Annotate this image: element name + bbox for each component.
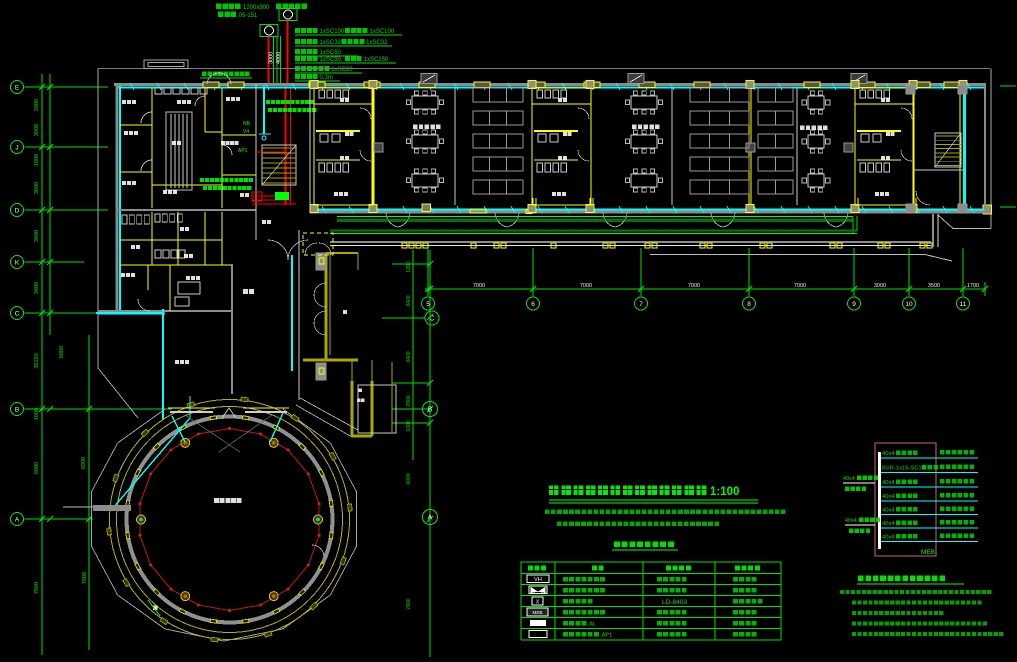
svg-text:BVR-1x16-SC15-: BVR-1x16-SC15- xyxy=(882,466,927,472)
svg-text:A: A xyxy=(15,516,20,523)
svg-text:6000: 6000 xyxy=(81,457,87,469)
svg-text:1xSC32: 1xSC32 xyxy=(320,40,342,46)
svg-text:6000: 6000 xyxy=(34,462,40,474)
svg-text:A: A xyxy=(428,515,433,522)
svg-text:1xSC32: 1xSC32 xyxy=(366,40,388,46)
svg-text:6000: 6000 xyxy=(59,346,65,358)
svg-text:4000: 4000 xyxy=(276,52,282,64)
svg-text:8: 8 xyxy=(747,301,751,308)
svg-text:0.3m: 0.3m xyxy=(320,75,333,81)
svg-text:B: B xyxy=(428,407,433,414)
svg-text:40x4: 40x4 xyxy=(882,535,895,541)
svg-text:40x4: 40x4 xyxy=(843,476,855,482)
svg-text:3400: 3400 xyxy=(406,351,412,362)
svg-text:C: C xyxy=(15,310,20,317)
svg-text:3400: 3400 xyxy=(406,295,412,306)
svg-text:6000: 6000 xyxy=(406,473,412,484)
svg-text:9: 9 xyxy=(852,301,856,308)
svg-text:3000: 3000 xyxy=(269,52,275,64)
svg-text:NB: NB xyxy=(243,121,251,127)
svg-text:1xSC50: 1xSC50 xyxy=(320,50,342,56)
svg-text:40x4: 40x4 xyxy=(882,494,895,500)
svg-text:7000: 7000 xyxy=(580,283,592,289)
svg-text:40x4: 40x4 xyxy=(882,480,895,486)
svg-text:7800: 7800 xyxy=(82,572,88,584)
svg-text:1xSC100: 1xSC100 xyxy=(320,29,345,35)
svg-text:3000: 3000 xyxy=(874,283,886,289)
svg-text:36150: 36150 xyxy=(34,353,40,368)
svg-text:1xSC20: 1xSC20 xyxy=(331,67,353,73)
svg-text:10: 10 xyxy=(905,301,913,308)
svg-text:J: J xyxy=(15,144,18,151)
svg-text:3400: 3400 xyxy=(34,230,40,242)
svg-text:7000: 7000 xyxy=(688,283,700,289)
svg-text:1xSC250: 1xSC250 xyxy=(364,57,389,63)
svg-text:B: B xyxy=(15,406,19,413)
svg-text:K: K xyxy=(15,259,20,266)
svg-text:E: E xyxy=(15,84,20,91)
svg-text:1000: 1000 xyxy=(406,420,412,431)
svg-text:7800: 7800 xyxy=(406,598,412,609)
svg-text:1000: 1000 xyxy=(34,408,40,420)
svg-text:7000: 7000 xyxy=(473,283,485,289)
svg-text:2800: 2800 xyxy=(406,395,412,406)
svg-text:1700: 1700 xyxy=(967,283,979,289)
svg-text:11: 11 xyxy=(960,301,967,308)
svg-text:1000: 1000 xyxy=(34,154,40,166)
svg-text:1:100: 1:100 xyxy=(710,486,739,498)
svg-text:40x4: 40x4 xyxy=(882,508,895,514)
svg-text:40x4: 40x4 xyxy=(882,451,895,457)
svg-text:MEB: MEB xyxy=(533,610,543,615)
svg-text:1200x900: 1200x900 xyxy=(243,5,270,11)
svg-text:40x4: 40x4 xyxy=(845,518,857,524)
svg-text:D: D xyxy=(15,207,20,214)
svg-text:3400: 3400 xyxy=(34,282,40,294)
svg-text:AP1: AP1 xyxy=(238,148,248,154)
svg-text:LD-8403: LD-8403 xyxy=(662,599,687,606)
svg-text:1xSC50,: 1xSC50, xyxy=(320,57,343,63)
svg-text:7: 7 xyxy=(639,301,643,308)
svg-text:7000: 7000 xyxy=(794,283,806,289)
svg-text:3500: 3500 xyxy=(928,283,940,289)
svg-text:.05-151: .05-151 xyxy=(237,13,258,19)
svg-text:7800: 7800 xyxy=(34,582,40,594)
svg-text:1xSC100: 1xSC100 xyxy=(369,29,394,35)
svg-text:6: 6 xyxy=(531,301,535,308)
svg-text:MEB: MEB xyxy=(921,549,935,556)
svg-text:3000: 3000 xyxy=(34,124,40,136)
svg-text:2000: 2000 xyxy=(34,99,40,111)
svg-text:40x4: 40x4 xyxy=(882,521,895,527)
svg-text:V4: V4 xyxy=(243,129,249,135)
svg-text:1200: 1200 xyxy=(406,261,412,272)
svg-text:,AP1: ,AP1 xyxy=(600,633,612,639)
svg-text:,AL: ,AL xyxy=(588,622,596,628)
svg-text:VH: VH xyxy=(534,577,542,583)
svg-text:3000: 3000 xyxy=(34,182,40,194)
